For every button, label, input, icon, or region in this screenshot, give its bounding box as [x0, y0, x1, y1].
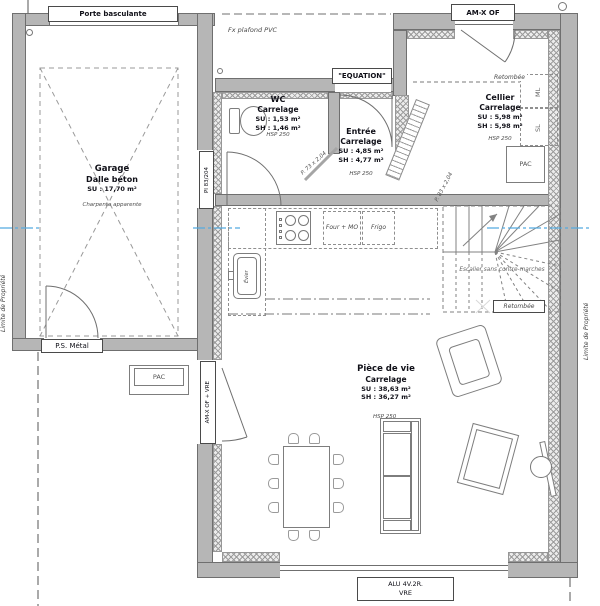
- toilet-tank: [229, 108, 240, 134]
- sofa: [380, 418, 421, 534]
- cellier-su: SU : 5,98 m²: [462, 113, 538, 121]
- property-limit-right: Limite de Propriété: [583, 286, 594, 376]
- chair: [333, 454, 344, 465]
- chair: [288, 530, 299, 541]
- pi-door-label: PI 83/204: [199, 151, 214, 209]
- side-table-inner: [463, 429, 513, 489]
- oven-micro-box: Four + MO: [323, 211, 361, 245]
- heat-pump-exterior-label: PAC: [153, 373, 165, 381]
- burner-icon: [285, 215, 296, 226]
- entree-name: Entrée: [325, 127, 397, 137]
- entree-hsp: HSP 250: [325, 171, 397, 178]
- cellier-sh: SH : 5,98 m²: [462, 122, 538, 130]
- faucet-icon: [228, 271, 234, 280]
- chair: [288, 433, 299, 444]
- wc-su: SU : 1,53 m²: [240, 115, 316, 123]
- sofa-armrest: [383, 520, 411, 531]
- burner-icon: [298, 215, 309, 226]
- corner-marker-circle: [558, 2, 567, 11]
- heat-pump-exterior: PAC: [129, 365, 189, 395]
- sofa-cushion: [383, 433, 411, 476]
- knob-icon: [279, 218, 282, 221]
- stairs-note: Escalier sans contre-marches: [447, 267, 557, 273]
- burner-icon: [285, 230, 296, 241]
- floor-lamp-icon: [530, 456, 552, 478]
- retombee-stairs-label: Retombée: [493, 300, 545, 313]
- west-living-door-text: AM-X OF + VRE: [205, 381, 211, 423]
- entree-su: SU : 4,85 m²: [325, 147, 397, 155]
- bay-window-shutter: VRE: [399, 589, 412, 598]
- pi-door-text: PI 83/204: [204, 167, 210, 193]
- ps-metal-door-text: P.S. Métal: [55, 342, 89, 350]
- entry-door-name-label: "EQUATION": [332, 68, 392, 84]
- knob-icon: [279, 230, 282, 233]
- sink-label: Évier: [244, 262, 250, 292]
- wc-sh: SH : 1,46 m²: [240, 124, 316, 132]
- fridge-box: Frigo: [362, 211, 395, 245]
- chair: [333, 502, 344, 513]
- garage-room-label: Garage Dalle béton SU : 17,70 m² Charpen…: [52, 164, 172, 209]
- chair: [309, 530, 320, 541]
- retombee-cellier-label: Retombée: [492, 74, 527, 81]
- chair: [333, 478, 344, 489]
- bay-window-type: ALU 4V.2R.: [388, 580, 423, 589]
- chair: [309, 433, 320, 444]
- floor-plan: Four + MO Frigo Évier ML SL PAC PAC: [0, 0, 600, 606]
- garage-door-label: Porte basculante: [48, 6, 178, 22]
- marker-circle: [26, 29, 33, 36]
- cellier-floor: Carrelage: [462, 103, 538, 113]
- living-name: Pièce de vie: [340, 364, 432, 375]
- porch-post-circle: [217, 68, 223, 74]
- living-floor: Carrelage: [340, 375, 432, 385]
- chair: [268, 454, 279, 465]
- knob-icon: [279, 224, 282, 227]
- chair: [268, 502, 279, 513]
- wc-name: WC: [240, 95, 316, 105]
- ps-metal-door-label: P.S. Métal: [41, 339, 103, 353]
- sink: Évier: [233, 253, 261, 299]
- property-limit-left: Limite de Propriété: [0, 258, 11, 348]
- sofa-armrest: [383, 421, 411, 432]
- bay-window-label: ALU 4V.2R. VRE: [357, 577, 454, 601]
- ceiling-note: Fx plafond PVC: [228, 26, 277, 34]
- entry-door-name-text: "EQUATION": [338, 72, 386, 80]
- wc-hsp: HSP 250: [240, 132, 316, 139]
- amx-window-label-text: AM-X OF: [466, 9, 499, 17]
- garage-note: Charpente apparente: [52, 202, 172, 209]
- sofa-back: [411, 421, 419, 531]
- cellier-room-label: Cellier Carrelage SU : 5,98 m² SH : 5,98…: [462, 93, 538, 143]
- living-sh: SH : 36,27 m²: [340, 393, 432, 401]
- living-room-label: Pièce de vie Carrelage SU : 38,63 m² SH …: [340, 364, 432, 402]
- wc-room-label: WC Carrelage SU : 1,53 m² SH : 1,46 m² H…: [240, 95, 316, 139]
- oven-micro-label: Four + MO: [326, 224, 358, 232]
- knob-icon: [279, 236, 282, 239]
- garage-name: Garage: [52, 164, 172, 175]
- retombee-stairs-text: Retombée: [504, 303, 535, 310]
- living-su: SU : 38,63 m²: [340, 385, 432, 393]
- west-living-door-label: AM-X OF + VRE: [200, 361, 216, 444]
- heat-pump-cellier-label: PAC: [519, 160, 531, 168]
- armchair-seat: [448, 338, 491, 386]
- chair: [268, 478, 279, 489]
- heat-pump-exterior-inner: PAC: [134, 368, 184, 386]
- cellier-name: Cellier: [462, 93, 538, 103]
- cellier-hsp: HSP 250: [462, 136, 538, 143]
- amx-window-label: AM-X OF: [451, 4, 515, 21]
- post-cross: [476, 300, 490, 313]
- sofa-cushion: [383, 476, 411, 519]
- entree-floor: Carrelage: [325, 137, 397, 147]
- stairs: [443, 206, 560, 312]
- entree-sh: SH : 4,77 m²: [325, 156, 397, 164]
- fridge-label: Frigo: [371, 224, 386, 232]
- heat-pump-cellier: PAC: [506, 146, 545, 183]
- wc-floor: Carrelage: [240, 105, 316, 115]
- garage-door-label-text: Porte basculante: [79, 10, 146, 18]
- burner-icon: [298, 230, 309, 241]
- cooktop: [276, 211, 311, 245]
- garage-floor: Dalle béton: [52, 175, 172, 185]
- garage-su: SU : 17,70 m²: [52, 185, 172, 193]
- entree-room-label: Entrée Carrelage SU : 4,85 m² SH : 4,77 …: [325, 127, 397, 178]
- dining-table: [283, 446, 330, 528]
- living-hsp: HSP 250: [373, 414, 396, 420]
